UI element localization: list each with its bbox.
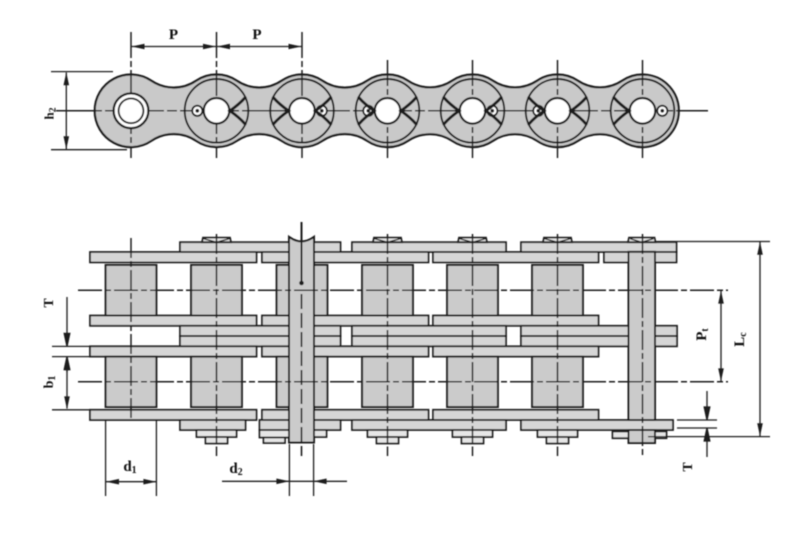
svg-text:T: T [681,462,696,472]
svg-text:P: P [169,27,178,43]
svg-text:P: P [252,27,261,43]
svg-text:T: T [42,298,57,308]
